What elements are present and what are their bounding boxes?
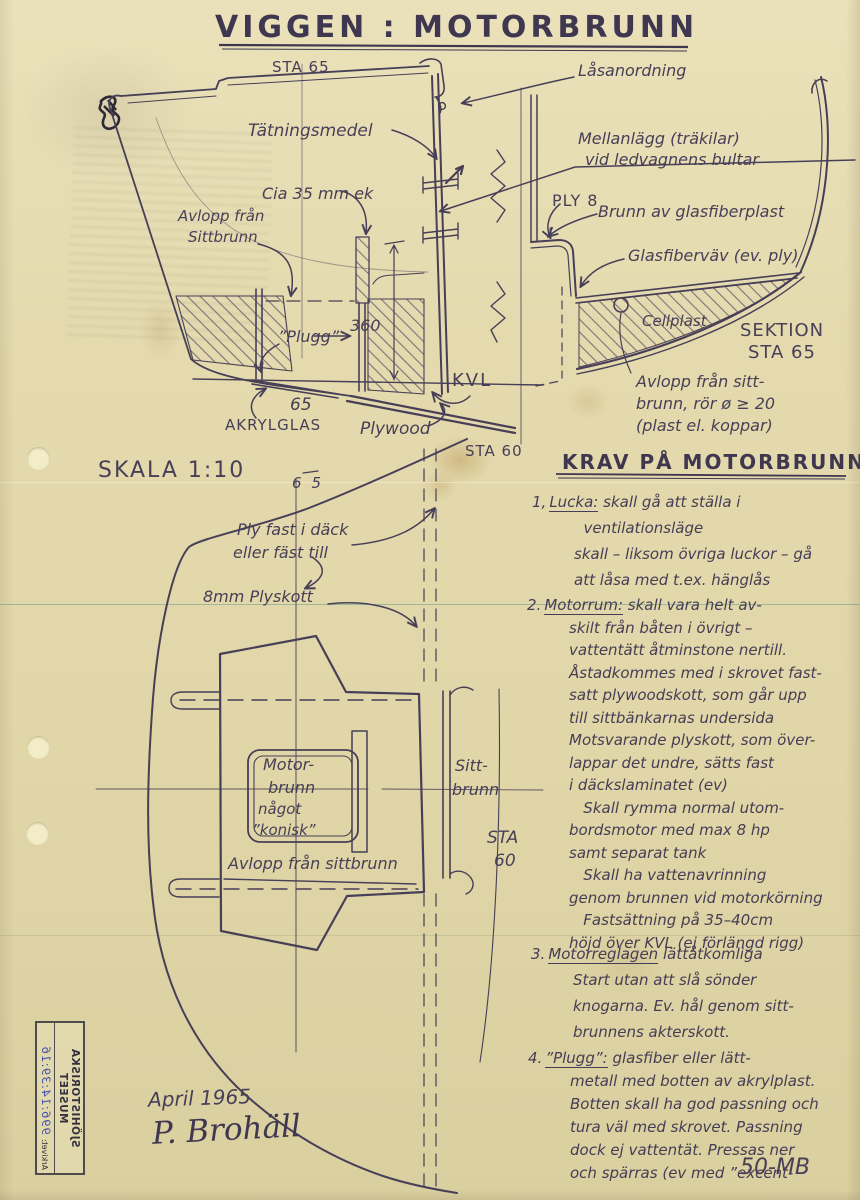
label-tatningsmedel: Tätningsmedel: [248, 121, 373, 141]
label-avlopp-ror-2: brunn, rör ø ≥ 20: [636, 394, 775, 413]
text-line: knogarna. Ev. hål genom sitt-: [573, 993, 860, 1019]
label-avlopp-2: Sittbrunn: [188, 228, 258, 246]
label-mellanlagg-2: vid ledvagnens bultar: [585, 150, 759, 169]
label-motorbrunn-2: brunn: [268, 778, 315, 797]
label-avlopp-plan: Avlopp från sittbrunn: [228, 854, 398, 873]
label-motorbrunn-4: ”konisk”: [252, 821, 316, 839]
label-sittbrunn-2: brunn: [452, 780, 499, 799]
page-title: VIGGEN : MOTORBRUNN: [215, 10, 695, 45]
dim-65: 65: [290, 395, 312, 415]
text-line: genom brunnen vid motorkörning: [569, 887, 860, 910]
label-sta60-plan-1: STA: [487, 828, 518, 848]
label-cia-35mm-ek: Cia 35 mm ek: [262, 184, 373, 203]
text-line: metall med botten av akrylplast.: [570, 1070, 860, 1093]
requirement-first-line: 3.Motorreglagen lättåtkomliga: [531, 941, 860, 967]
label-lasanordning: Låsanordning: [578, 61, 686, 80]
text-line: ventilationsläge: [574, 515, 857, 541]
label-ply-fast-1: Ply fast i däck: [237, 520, 348, 539]
label-avlopp-ror-1: Avlopp från sitt-: [636, 372, 764, 391]
label-brunn-glasfiber: Brunn av glasfiberplast: [598, 202, 784, 221]
text-line: dock ej vattentät. Pressas ner: [570, 1139, 860, 1162]
requirement-item-4: 4.”Plugg”: glasfiber eller lätt- metall …: [528, 1047, 860, 1185]
text-line: bordsmotor med max 8 hp: [569, 819, 860, 842]
text-line: till sittbänkarnas undersida: [569, 707, 860, 730]
label-avlopp-ror-3: (plast el. koppar): [636, 416, 773, 435]
label-cellplast: Cellplast: [642, 312, 707, 330]
label-glasfibervav: Glasfiberväv (ev. ply): [628, 246, 798, 265]
requirement-first-line: 1,Lucka: skall gå att ställa i: [532, 489, 857, 515]
text-line: att låsa med t.ex. hänglås: [574, 567, 857, 593]
label-sta60-upper: STA 60: [465, 442, 523, 460]
requirement-item-3: 3.Motorreglagen lättåtkomliga Start utan…: [531, 941, 860, 1045]
label-plugg: ”Plugg”: [278, 327, 339, 346]
text-line: Start utan att slå sönder: [573, 967, 860, 993]
text-line: och spärras (ev med ”excent-: [570, 1162, 860, 1185]
requirement-first-line: 4.”Plugg”: glasfiber eller lätt-: [528, 1047, 860, 1070]
scanned-drawing-page: VIGGEN : MOTORBRUNN STA 65 Låsanordning …: [0, 0, 860, 1200]
text-line: Motsvarande plyskott, som över-: [569, 729, 860, 752]
text-line: brunnens akterskott.: [573, 1019, 860, 1045]
label-sta60-plan-2: 60: [494, 851, 516, 871]
label-plywood: Plywood: [360, 419, 431, 439]
stamp-archive-label: Arkivet:: [40, 1139, 49, 1170]
label-sektion: SEKTION: [740, 320, 824, 341]
label-motorbrunn-1: Motor-: [263, 755, 314, 774]
text-line: Åstadkommes med i skrovet fast-: [569, 662, 860, 685]
archive-stamp: SJÖHISTORISKA MUSEET Arkivet: 996:14:39:…: [35, 1021, 85, 1175]
text-line: samt separat tank: [569, 842, 860, 865]
label-sta65-top: STA 65: [272, 58, 330, 76]
text-line: Skall rymma normal utom-: [569, 797, 860, 820]
text-line: skilt från båten i övrigt –: [569, 617, 860, 640]
stamp-museum-name: SJÖHISTORISKA MUSEET: [54, 1023, 83, 1173]
label-akrylglas: AKRYLGLAS: [225, 416, 321, 434]
text-line: lappar det undre, sätts fast: [569, 752, 860, 775]
requirements-heading: KRAV PÅ MOTORBRUNN: [562, 450, 860, 474]
requirement-item-1: 1,Lucka: skall gå att ställa i ventilati…: [532, 489, 857, 593]
label-sta65-mark: 65: [292, 474, 331, 492]
label-kvl: KVL: [452, 370, 492, 391]
text-line: skall – liksom övriga luckor – gå: [574, 541, 857, 567]
label-ply8: PLY 8: [552, 191, 598, 210]
dim-360: 360: [350, 316, 381, 335]
text-line: tura väl med skrovet. Passning: [570, 1116, 860, 1139]
drawing-code: 50-MB: [740, 1155, 810, 1180]
requirement-first-line: 2.Motorrum: skall vara helt av-: [527, 594, 860, 617]
label-sektion-sta65: STA 65: [748, 342, 816, 363]
label-mellanlagg-1: Mellanlägg (träkilar): [578, 129, 740, 148]
label-skala: SKALA 1:10: [98, 458, 245, 483]
label-motorbrunn-3: något: [258, 800, 301, 818]
text-line: vattentätt åtminstone nertill.: [569, 639, 860, 662]
text-line: i däckslaminatet (ev): [569, 774, 860, 797]
date: April 1965: [148, 1084, 252, 1112]
label-sittbrunn-1: Sitt-: [455, 756, 488, 775]
stamp-archive-number: 996:14:39:16: [39, 1045, 53, 1134]
label-avlopp-1: Avlopp från: [178, 207, 264, 225]
label-ply-fast-2: eller fäst till: [233, 543, 328, 562]
text-line: satt plywoodskott, som går upp: [569, 684, 860, 707]
text-line: Skall ha vattenavrinning: [569, 864, 860, 887]
label-plyskott: 8mm Plyskott: [203, 587, 313, 606]
stamp-archive-row: Arkivet: 996:14:39:16: [37, 1023, 54, 1173]
text-line: Botten skall ha god passning och: [570, 1093, 860, 1116]
text-line: Fastsättning på 35–40cm: [569, 909, 860, 932]
requirement-item-2: 2.Motorrum: skall vara helt av- skilt fr…: [527, 594, 860, 954]
